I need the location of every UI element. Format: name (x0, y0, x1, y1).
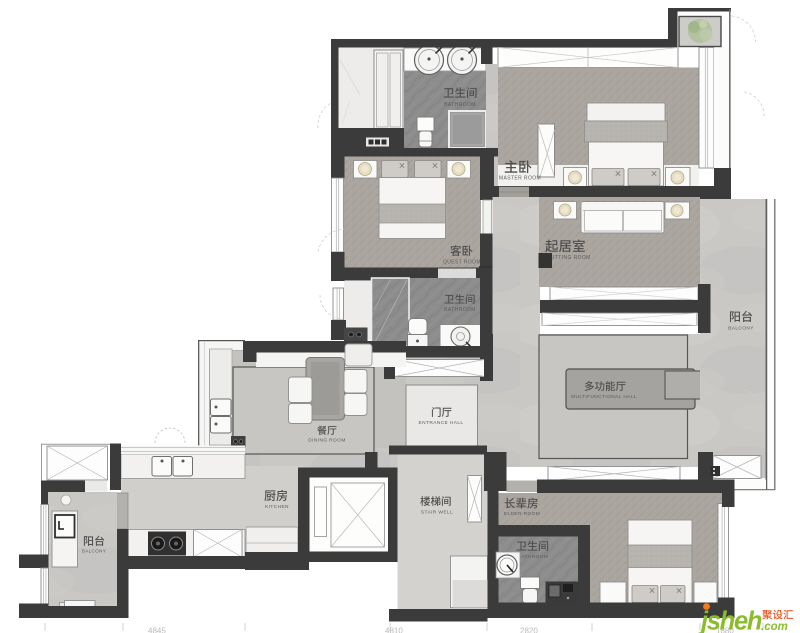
svg-text:4810: 4810 (385, 627, 403, 633)
svg-text:jsheh: jsheh (698, 608, 762, 633)
svg-text:MULTIFUNCTIONAL HALL: MULTIFUNCTIONAL HALL (571, 394, 637, 400)
svg-text:DINING ROOM: DINING ROOM (308, 438, 345, 444)
svg-text:ENTRANCE HALL: ENTRANCE HALL (419, 420, 464, 426)
svg-text:MASTER ROOM: MASTER ROOM (499, 176, 541, 182)
svg-text:.com: .com (761, 621, 788, 633)
svg-text:BATHROOM: BATHROOM (518, 554, 549, 560)
svg-text:BATHROOM: BATHROOM (444, 307, 476, 313)
svg-text:2820: 2820 (520, 627, 538, 633)
svg-text:BALCONY: BALCONY (82, 549, 106, 554)
svg-text:STAIR WELL: STAIR WELL (421, 510, 453, 516)
svg-text:BATHROOM: BATHROOM (444, 102, 476, 108)
svg-text:4845: 4845 (148, 627, 166, 633)
svg-text:SITTING ROOM: SITTING ROOM (549, 255, 590, 261)
svg-text:KITCHEN: KITCHEN (265, 504, 289, 510)
svg-text:QUEST ROOM: QUEST ROOM (443, 260, 481, 266)
svg-text:BALCONY: BALCONY (728, 326, 754, 332)
svg-text:ELDER ROOM: ELDER ROOM (504, 511, 540, 517)
